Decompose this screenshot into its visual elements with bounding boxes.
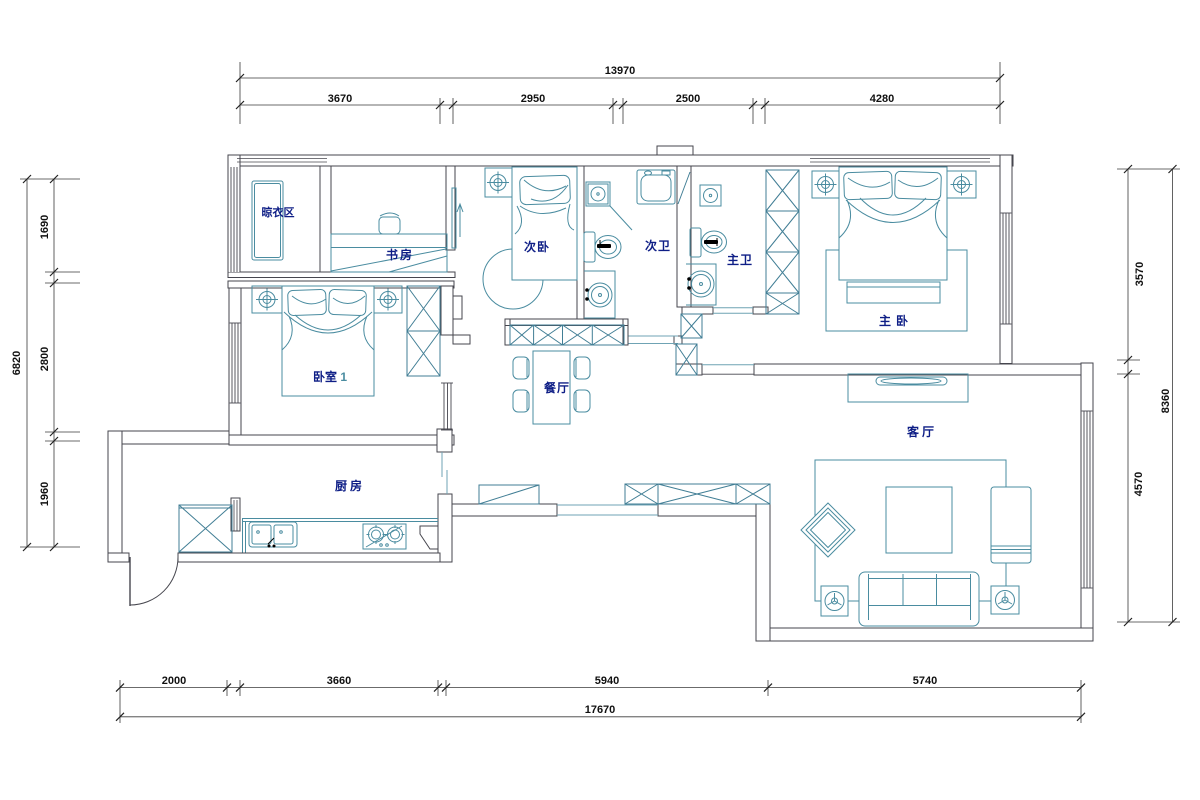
svg-text:2950: 2950: [521, 93, 545, 105]
svg-text:3670: 3670: [328, 93, 352, 105]
svg-text:5740: 5740: [913, 675, 937, 687]
svg-text:17670: 17670: [585, 704, 616, 716]
svg-text:6820: 6820: [11, 351, 23, 375]
svg-text:晾衣区: 晾衣区: [262, 205, 295, 219]
svg-text:2000: 2000: [162, 675, 186, 687]
svg-text:5940: 5940: [595, 675, 619, 687]
svg-text:4570: 4570: [1133, 472, 1145, 496]
svg-text:3660: 3660: [327, 675, 351, 687]
svg-text:餐厅: 餐厅: [544, 380, 570, 395]
svg-text:次卫: 次卫: [645, 238, 671, 253]
svg-text:4280: 4280: [870, 93, 894, 105]
svg-text:13970: 13970: [605, 65, 636, 77]
svg-text:1960: 1960: [39, 482, 51, 506]
svg-text:次卧: 次卧: [524, 239, 550, 254]
svg-text:2800: 2800: [39, 347, 51, 371]
svg-text:主卧: 主卧: [879, 313, 913, 328]
svg-text:8360: 8360: [1160, 389, 1172, 413]
svg-text:2500: 2500: [676, 93, 700, 105]
svg-text:1690: 1690: [39, 215, 51, 239]
svg-text:客厅: 客厅: [906, 424, 937, 439]
svg-text:卧室 1: 卧室 1: [313, 369, 347, 384]
svg-text:3570: 3570: [1134, 262, 1146, 286]
svg-text:厨房: 厨房: [335, 478, 365, 493]
svg-text:主卫: 主卫: [727, 252, 753, 267]
svg-text:书房: 书房: [386, 247, 414, 262]
